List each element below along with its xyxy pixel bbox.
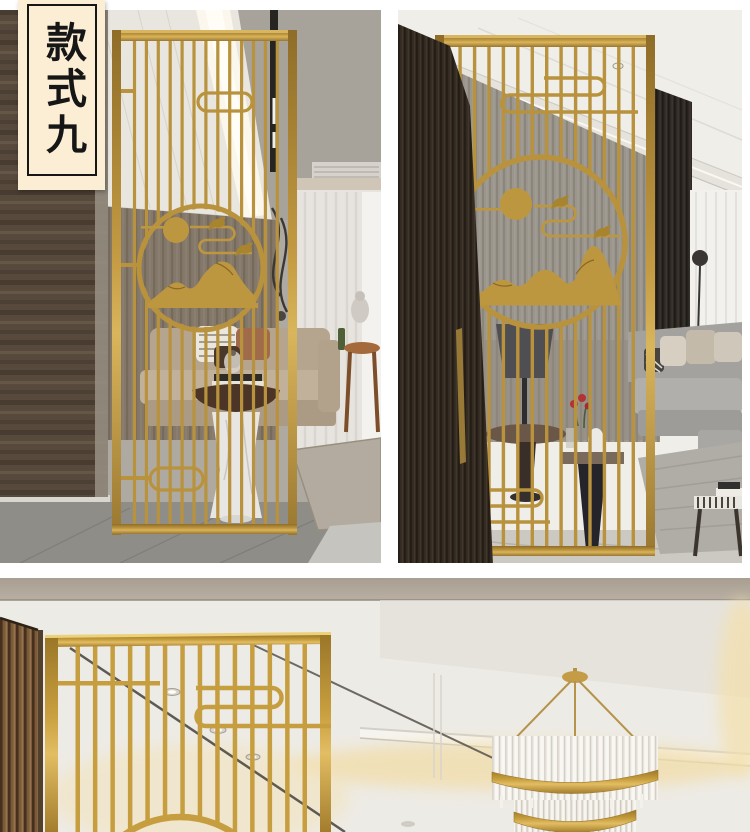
screen-bottom-frame [112, 524, 297, 534]
screen-right-post [320, 635, 331, 832]
style-label-text: 款式九 [42, 21, 83, 159]
screen-right-post [288, 30, 297, 535]
sun-disc [163, 217, 189, 243]
green-bottle [338, 328, 345, 350]
downlight-icon [401, 821, 415, 827]
sheer-curtain [690, 190, 742, 336]
floor-lamp-head [692, 250, 708, 266]
product-style-collage: 款式九 [0, 0, 750, 832]
style-label-border: 款式九 [27, 4, 97, 176]
sofa [628, 322, 742, 456]
screen-left-post [112, 30, 121, 535]
photo-top-right [398, 10, 742, 563]
photo-bottom [0, 578, 750, 832]
wood-slat-wall [0, 618, 43, 832]
screen-right-post [646, 35, 655, 556]
ceiling-top-band [0, 578, 750, 600]
sun-disc [500, 188, 532, 220]
tv-slat-wall [654, 88, 692, 334]
style-label-badge: 款式九 [18, 0, 105, 190]
screen-left-post [45, 638, 58, 832]
